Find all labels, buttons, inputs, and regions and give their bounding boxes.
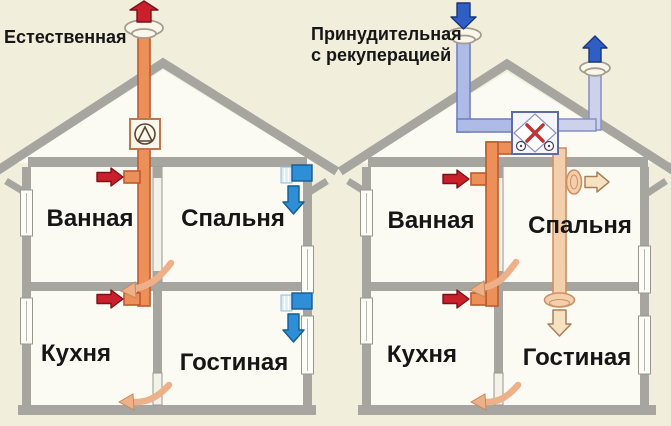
- right-mid-floor: [371, 282, 640, 291]
- outlet-cap-rim: [585, 68, 605, 76]
- left-bathroom-duct-elbow: [124, 171, 140, 183]
- intake-duct-horizontal: [457, 119, 514, 132]
- room-label-bathroom-right: Ванная: [376, 207, 486, 235]
- title-forced-ventilation: Принудительная с рекуперацией: [311, 24, 462, 66]
- title-natural-ventilation: Естественная: [4, 27, 127, 48]
- left-attic: [14, 70, 315, 163]
- left-chimney-cap-rim: [132, 29, 156, 38]
- room-label-bedroom-right: Спальня: [515, 212, 645, 240]
- left-ground-floor: [18, 405, 316, 415]
- room-label-living-right: Гостиная: [509, 344, 645, 372]
- fan-damper-icon: [130, 119, 160, 149]
- right-ceiling: [368, 157, 648, 167]
- left-ceiling: [28, 157, 307, 167]
- room-label-bedroom-left: Спальня: [168, 205, 298, 233]
- outlet-duct-horizontal: [558, 119, 596, 131]
- recuperator-unit: [512, 112, 558, 154]
- outlet-up-arrow-icon: [583, 36, 607, 62]
- room-label-kitchen-right: Кухня: [378, 341, 466, 369]
- room-label-kitchen-left: Кухня: [32, 340, 120, 368]
- left-mid-floor: [31, 282, 303, 291]
- right-ground-floor: [358, 405, 656, 415]
- room-label-bathroom-left: Ванная: [36, 205, 144, 233]
- right-bathroom-duct-elbow: [471, 173, 486, 185]
- exhaust-up-arrow-icon: [130, 1, 158, 22]
- ventilation-diagram: Естественная Принудительная с рекупераци…: [0, 0, 671, 426]
- room-label-living-left: Гостиная: [166, 349, 302, 377]
- title-forced-line1: Принудительная: [311, 24, 462, 45]
- title-forced-line2: с рекуперацией: [311, 45, 462, 66]
